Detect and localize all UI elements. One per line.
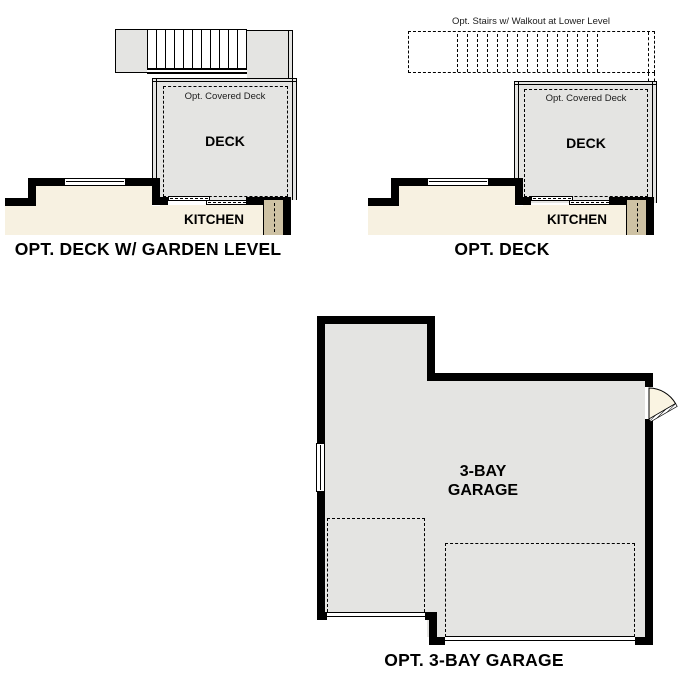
opt-stair-treads: [448, 32, 601, 72]
plan-deck: Opt. Stairs w/ Walkout at Lower Level Op…: [0, 0, 687, 262]
plan-3-bay-garage: 3-BAY GARAGE OPT. 3-BAY GARAGE: [0, 300, 687, 687]
kitchen-label: KITCHEN: [531, 212, 623, 227]
sliding-door-panel: [531, 196, 573, 201]
garage-wall-bottom-left: [425, 612, 437, 620]
garage-wall-bottom-right: [635, 637, 653, 645]
sliding-door-panel: [569, 200, 611, 205]
garage-door-opening: [327, 612, 425, 617]
plan-title: OPT. DECK: [357, 239, 647, 260]
deck-edge-inner-line: [515, 84, 656, 85]
window-pane-line: [429, 181, 487, 182]
garage-wall-right: [645, 419, 653, 645]
garage-label: 3-BAY GARAGE: [383, 462, 583, 500]
kitchen-window: [427, 178, 489, 186]
opt-stairs-divider: [648, 32, 649, 72]
garage-wall-top: [317, 316, 435, 324]
garage-wall-top-right: [427, 373, 653, 381]
door-glass-line: [571, 202, 609, 203]
covered-deck-label: Opt. Covered Deck: [515, 93, 657, 104]
garage-wall-left: [317, 492, 325, 620]
door-jamb: [523, 197, 531, 205]
stair-chase-dashed-line: [637, 203, 638, 232]
deck-wall-stub: [515, 178, 523, 205]
garage-wall-left: [317, 316, 325, 443]
garage-bay-outline: [445, 543, 635, 637]
door-glass-line: [533, 198, 571, 199]
deck-label: DECK: [526, 135, 646, 151]
opt-stairs-label: Opt. Stairs w/ Walkout at Lower Level: [406, 16, 656, 27]
garage-wall-step-upper: [427, 316, 435, 381]
kitchen-wall: [646, 197, 654, 235]
stair-chase: [626, 200, 647, 235]
entry-door-swing-icon: [645, 383, 685, 425]
floorplan-sheet: Opt. Covered Deck DECK KITCHEN OPT. DECK…: [0, 0, 687, 687]
window-pane-line: [320, 445, 321, 490]
garage-window: [316, 443, 325, 492]
garage-bay-outline: [327, 518, 425, 612]
plan-title: OPT. 3-BAY GARAGE: [324, 650, 624, 671]
